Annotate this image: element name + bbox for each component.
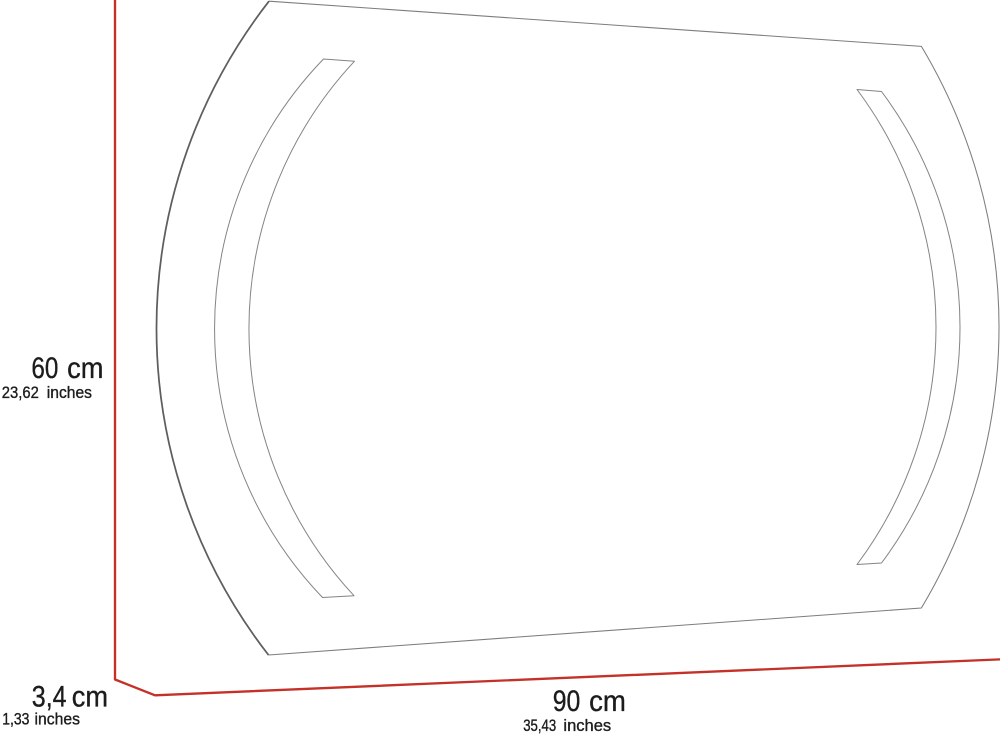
svg-text:3,4: 3,4 <box>32 681 67 714</box>
svg-text:inches: inches <box>47 384 92 402</box>
svg-text:60: 60 <box>31 352 58 385</box>
svg-text:cm: cm <box>589 685 626 718</box>
svg-text:inches: inches <box>563 717 611 735</box>
svg-text:90: 90 <box>553 685 581 718</box>
svg-text:cm: cm <box>67 352 103 385</box>
svg-text:inches: inches <box>35 711 81 729</box>
svg-text:23,62: 23,62 <box>2 384 39 402</box>
svg-text:cm: cm <box>72 681 108 714</box>
svg-text:1,33: 1,33 <box>2 711 29 729</box>
svg-text:35,43: 35,43 <box>523 717 556 735</box>
